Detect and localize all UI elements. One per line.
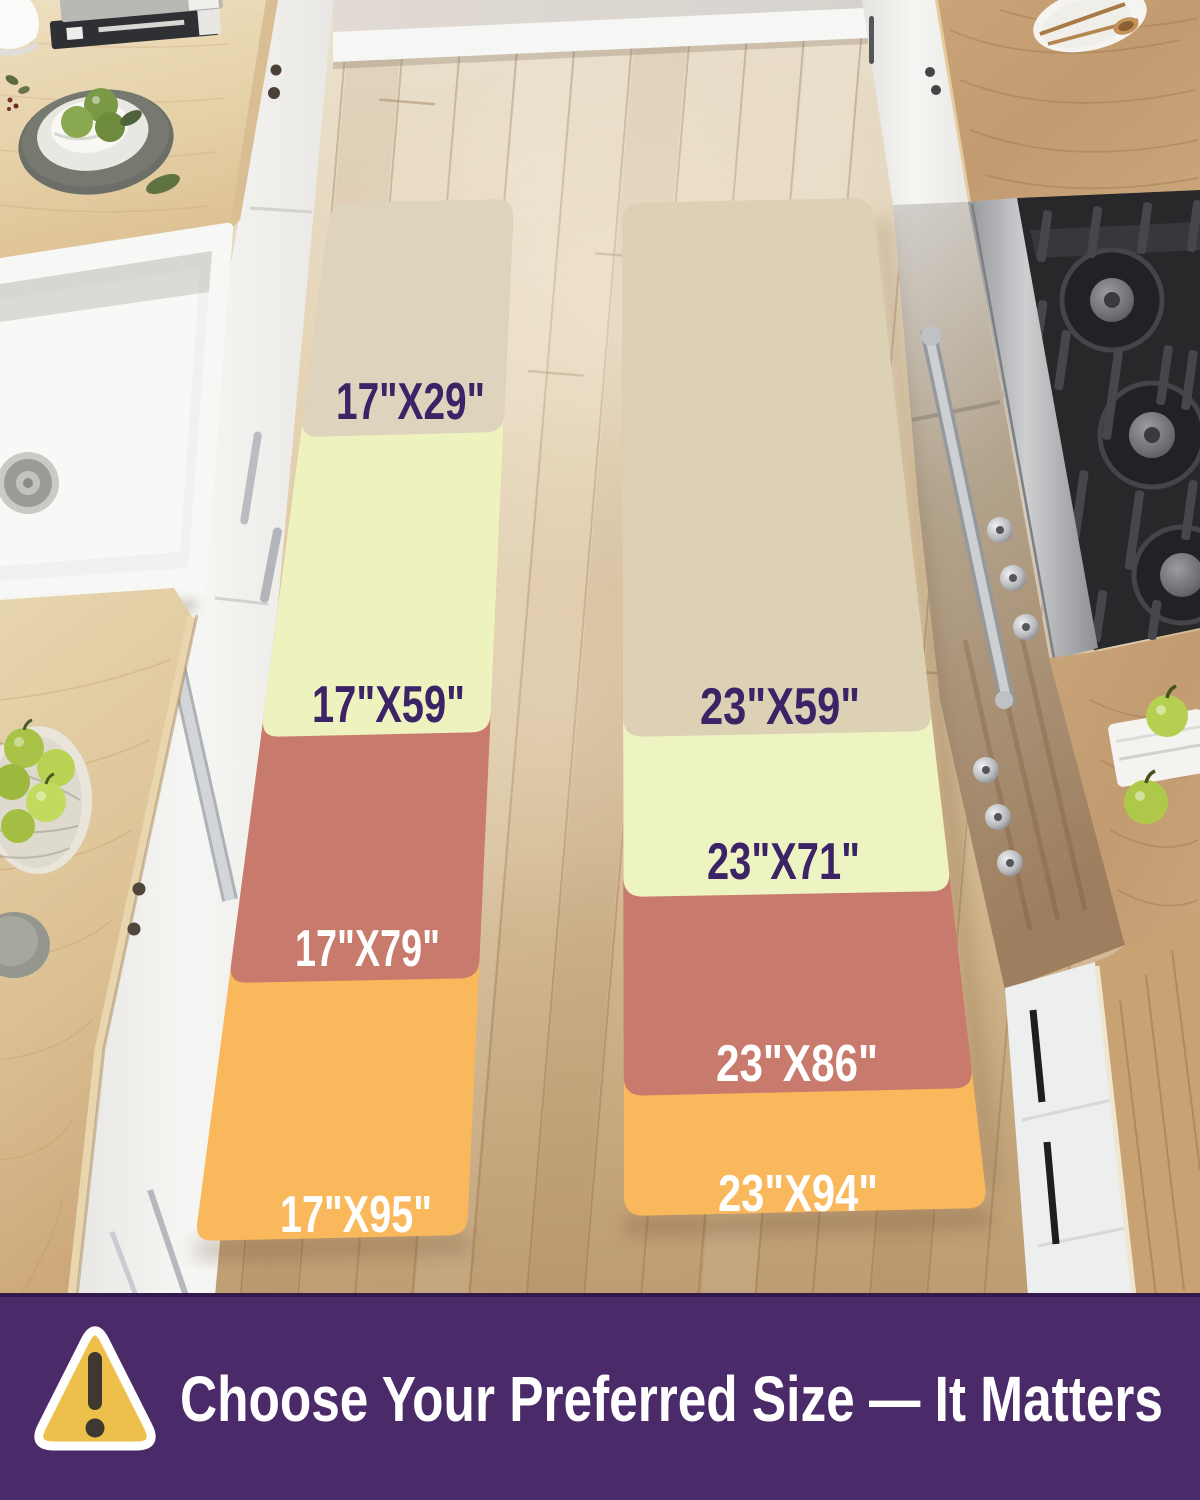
svg-text:17"X29": 17"X29" <box>336 373 485 431</box>
svg-text:23"X86": 23"X86" <box>716 1035 878 1093</box>
svg-text:23"X71": 23"X71" <box>707 833 860 891</box>
svg-text:17"X59": 17"X59" <box>312 676 465 734</box>
svg-text:23"X59": 23"X59" <box>700 678 860 736</box>
svg-text:Choose Your Preferred Size — I: Choose Your Preferred Size — It Matters <box>180 1363 1163 1435</box>
svg-text:17"X79": 17"X79" <box>295 920 440 978</box>
svg-text:23"X94": 23"X94" <box>718 1165 878 1223</box>
svg-text:17"X95": 17"X95" <box>280 1186 432 1244</box>
